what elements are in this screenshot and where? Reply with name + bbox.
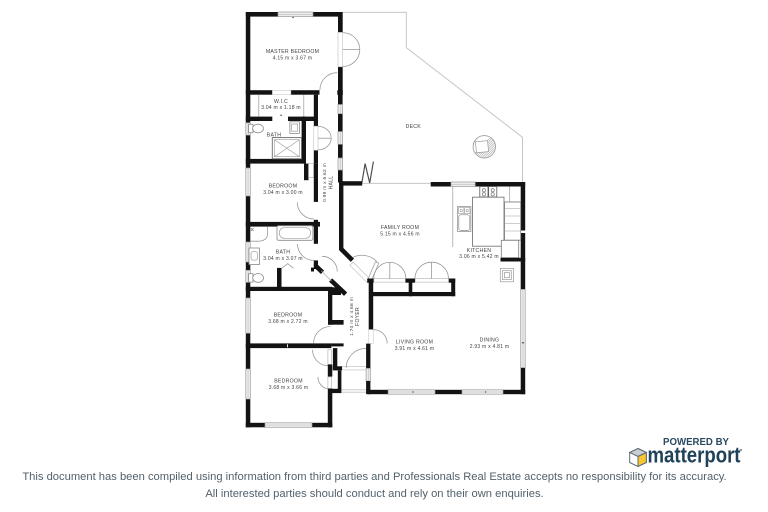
svg-text:3.68 m x 2.72 m: 3.68 m x 2.72 m [268, 319, 308, 325]
svg-text:KITCHEN: KITCHEN [467, 248, 492, 254]
svg-text:HALL: HALL [328, 176, 334, 190]
svg-text:BEDROOM: BEDROOM [274, 379, 303, 385]
svg-text:3.04 m x 3.00 m: 3.04 m x 3.00 m [263, 190, 303, 196]
svg-text:1.70 m x 4.68 m: 1.70 m x 4.68 m [349, 297, 355, 336]
svg-text:matterport: matterport [648, 443, 742, 468]
svg-text:W.I.C: W.I.C [274, 99, 288, 105]
svg-text:MASTER BEDROOM: MASTER BEDROOM [266, 49, 319, 55]
svg-text:3.91 m x 4.61 m: 3.91 m x 4.61 m [395, 346, 435, 352]
svg-text:3.68 m x 3.66 m: 3.68 m x 3.66 m [269, 385, 309, 391]
svg-text:3.06 m x 5.42 m: 3.06 m x 5.42 m [459, 254, 499, 260]
svg-text:DECK: DECK [406, 124, 422, 130]
svg-text:DINING: DINING [480, 338, 500, 344]
svg-text:LIVING ROOM: LIVING ROOM [396, 340, 433, 346]
svg-text:FAMILY ROOM: FAMILY ROOM [381, 225, 419, 231]
svg-text:5.15 m x 4.56 m: 5.15 m x 4.56 m [380, 231, 420, 237]
svg-text:0.99 m x 6.62 m: 0.99 m x 6.62 m [322, 163, 328, 202]
svg-text:4.15 m x 3.67 m: 4.15 m x 3.67 m [273, 56, 313, 62]
svg-text:BEDROOM: BEDROOM [269, 184, 298, 190]
svg-text:3.04 m x 1.18 m: 3.04 m x 1.18 m [261, 105, 301, 111]
svg-text:2.93 m x 4.81 m: 2.93 m x 4.81 m [470, 344, 510, 350]
svg-text:FOYER: FOYER [355, 307, 361, 326]
svg-text:BATH: BATH [276, 250, 290, 256]
svg-text:BEDROOM: BEDROOM [274, 313, 303, 319]
svg-text:3.04 m x 3.07 m: 3.04 m x 3.07 m [263, 256, 303, 262]
